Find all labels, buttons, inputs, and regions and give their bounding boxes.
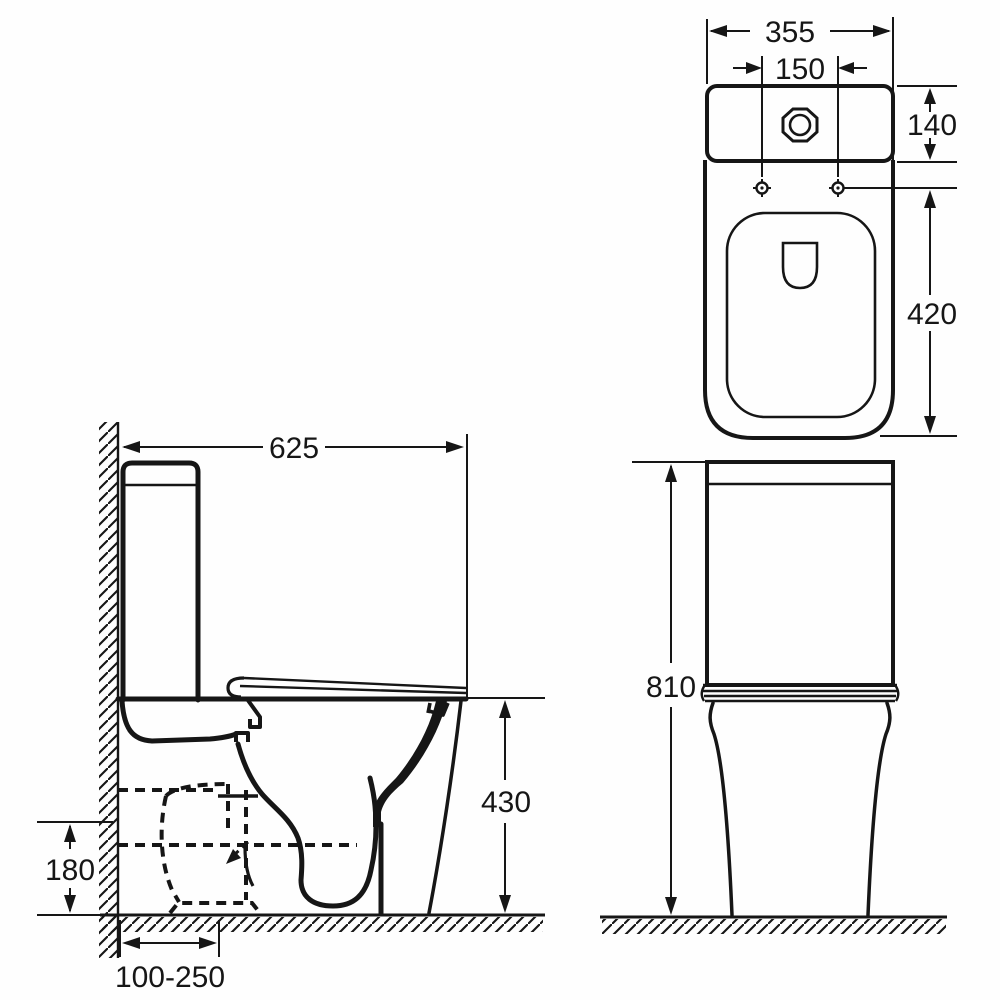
dim-label-355: 355 [765,16,815,49]
dim-140: 140 [897,86,957,162]
dim-label-180: 180 [45,854,95,887]
toilet-dimension-drawing: 625 430 180 100-250 [0,0,1000,1000]
wall-hatch [99,422,118,958]
dim-label-100-250: 100-250 [115,961,225,994]
dim-625: 625 [122,432,467,698]
pedestal-left [710,703,732,915]
dashed-outlet-options [118,784,357,913]
floor-hatch-front [602,919,946,934]
dim-label-810: 810 [646,671,696,704]
flush-rim-hook [236,733,248,742]
cistern-side [123,463,198,700]
dim-label-430: 430 [481,786,531,819]
cistern-plan [707,86,893,161]
seat-hinge [228,678,244,697]
side-view: 625 430 180 100-250 [37,422,545,994]
front-view: 810 [600,462,947,934]
flush-shell-shaded [373,701,447,827]
pedestal-right [868,703,890,915]
floor-hatch-side [102,917,543,932]
dim-label-140: 140 [907,109,957,142]
cistern-front [707,462,893,685]
dim-150: 150 [733,53,867,86]
plan-view: 355 150 140 420 [705,16,957,438]
seat-front [702,685,899,701]
vert-pipe-left-dashed [162,796,179,902]
water-inlet-plan [783,243,817,288]
technical-drawing-page: 625 430 180 100-250 [0,0,1000,1000]
pan-plan-outline [705,160,893,438]
dim-810: 810 [632,462,705,915]
dim-label-420: 420 [907,298,957,331]
flush-rim-strut [247,699,260,727]
dim-430: 430 [481,700,531,913]
dim-label-150: 150 [775,53,825,86]
bowl-outline [238,744,376,906]
pipe-foot-dashed [170,903,260,913]
dim-label-625: 625 [269,432,319,465]
pan-back-ledge [122,701,236,741]
